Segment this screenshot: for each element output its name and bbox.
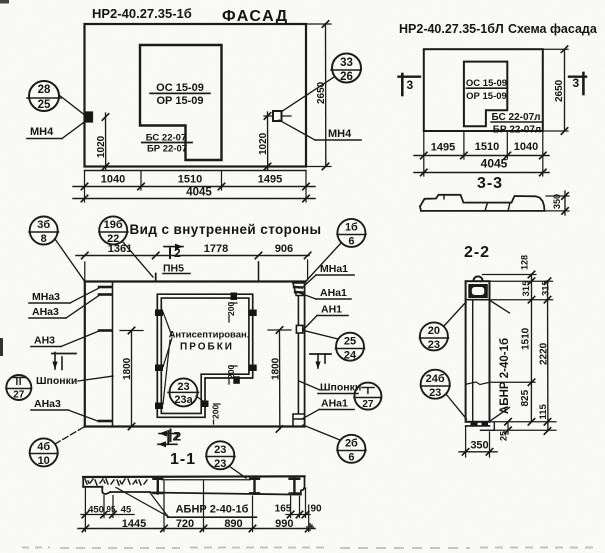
svg-text:АН1: АН1 — [321, 304, 342, 316]
svg-text:БР 22-07л: БР 22-07л — [493, 125, 542, 136]
svg-text:1510: 1510 — [178, 174, 202, 186]
svg-text:10: 10 — [38, 455, 50, 467]
svg-text:990: 990 — [275, 518, 293, 530]
svg-text:200: 200 — [211, 405, 221, 419]
svg-text:1800: 1800 — [122, 357, 133, 380]
svg-text:МНа1: МНа1 — [320, 263, 348, 275]
svg-text:1040: 1040 — [101, 174, 125, 186]
svg-text:350: 350 — [552, 194, 562, 209]
svg-text:2220: 2220 — [539, 342, 550, 365]
svg-text:БС 22-07: БС 22-07 — [146, 133, 187, 144]
svg-text:БР 22-07: БР 22-07 — [147, 144, 187, 155]
svg-text:1б: 1б — [345, 222, 358, 234]
svg-text:6: 6 — [348, 236, 354, 248]
svg-text:Шпонки: Шпонки — [320, 382, 361, 394]
svg-text:315: 315 — [541, 279, 552, 296]
svg-text:АНа1: АНа1 — [320, 287, 347, 299]
svg-text:МНа3: МНа3 — [32, 291, 60, 303]
svg-text:2650: 2650 — [316, 81, 327, 104]
svg-text:33: 33 — [340, 57, 353, 69]
svg-text:АНа3: АНа3 — [34, 398, 61, 410]
svg-text:2б: 2б — [345, 438, 358, 450]
svg-text:1510: 1510 — [475, 141, 499, 153]
svg-text:Шпонки: Шпонки — [36, 375, 77, 387]
svg-text:8: 8 — [41, 233, 47, 245]
svg-text:890: 890 — [224, 518, 242, 530]
svg-text:2: 2 — [174, 246, 181, 260]
svg-text:906: 906 — [275, 243, 293, 255]
svg-text:200: 200 — [226, 365, 236, 379]
svg-text:4б: 4б — [37, 441, 50, 453]
svg-text:20: 20 — [428, 325, 440, 337]
svg-text:25: 25 — [499, 431, 509, 441]
svg-text:3-3: 3-3 — [477, 175, 503, 192]
svg-text:315: 315 — [521, 280, 532, 297]
svg-text:ФАСАД: ФАСАД — [222, 8, 289, 25]
svg-text:23: 23 — [429, 387, 441, 399]
svg-text:3: 3 — [407, 78, 414, 92]
svg-text:26: 26 — [340, 71, 353, 83]
svg-text:БС 22-07л: БС 22-07л — [492, 112, 541, 123]
svg-text:4045: 4045 — [186, 187, 212, 199]
svg-text:1020: 1020 — [96, 135, 107, 158]
svg-text:Схема фасада: Схема фасада — [508, 22, 598, 36]
svg-text:23: 23 — [428, 339, 440, 351]
svg-text:24: 24 — [344, 350, 357, 362]
svg-text:95: 95 — [107, 505, 116, 514]
svg-text:825: 825 — [520, 389, 531, 406]
svg-text:1445: 1445 — [122, 518, 146, 530]
svg-text:25: 25 — [344, 336, 356, 348]
svg-text:25: 25 — [38, 99, 51, 111]
svg-text:ПРОБКИ: ПРОБКИ — [180, 342, 234, 353]
svg-text:23: 23 — [214, 458, 226, 470]
svg-text:АН3: АН3 — [34, 335, 55, 347]
svg-text:2: 2 — [173, 430, 180, 444]
svg-text:3б: 3б — [37, 219, 50, 231]
svg-text:1040: 1040 — [514, 141, 538, 153]
svg-text:24б: 24б — [426, 373, 445, 385]
svg-text:2650: 2650 — [554, 79, 565, 102]
svg-text:ОР 15-09: ОР 15-09 — [156, 95, 203, 107]
svg-text:Антисептирован.: Антисептирован. — [169, 330, 250, 341]
svg-text:22: 22 — [107, 233, 119, 245]
svg-text:ОС 15-09: ОС 15-09 — [466, 78, 507, 89]
svg-text:350: 350 — [470, 440, 488, 452]
svg-text:ПН5: ПН5 — [163, 263, 184, 275]
svg-text:1800: 1800 — [270, 357, 281, 380]
svg-text:200: 200 — [226, 302, 236, 316]
svg-text:90: 90 — [310, 504, 322, 515]
svg-text:НР2-40.27.35-1б: НР2-40.27.35-1б — [92, 6, 192, 21]
svg-text:Вид с внутренней стороны: Вид с внутренней стороны — [130, 222, 322, 237]
svg-text:1495: 1495 — [431, 142, 455, 154]
svg-text:128: 128 — [520, 255, 530, 270]
svg-text:1778: 1778 — [204, 243, 228, 255]
svg-text:27: 27 — [13, 390, 25, 401]
svg-text:1020: 1020 — [258, 132, 269, 155]
svg-text:АНа1: АНа1 — [321, 398, 348, 410]
svg-text:6: 6 — [348, 452, 354, 464]
svg-text:ОР 15-09: ОР 15-09 — [466, 91, 507, 102]
svg-text:АБНР 2-40-1б: АБНР 2-40-1б — [176, 504, 249, 516]
svg-text:3: 3 — [573, 76, 580, 90]
svg-text:450: 450 — [88, 505, 104, 516]
svg-text:2-2: 2-2 — [464, 244, 490, 261]
svg-text:27: 27 — [362, 399, 374, 410]
svg-text:АНа3: АНа3 — [32, 306, 59, 318]
svg-text:28: 28 — [38, 84, 51, 96]
svg-text:МН4: МН4 — [30, 126, 54, 138]
svg-text:45: 45 — [121, 505, 132, 516]
svg-text:II: II — [16, 377, 23, 388]
svg-text:1495: 1495 — [258, 174, 282, 186]
svg-text:НР2-40.27.35-1бЛ: НР2-40.27.35-1бЛ — [399, 22, 504, 36]
svg-text:ОС 15-09: ОС 15-09 — [156, 82, 204, 94]
svg-text:720: 720 — [176, 518, 194, 530]
svg-text:АБНР 2-40-1б: АБНР 2-40-1б — [499, 338, 511, 414]
svg-text:23: 23 — [177, 381, 189, 393]
svg-text:I: I — [367, 386, 370, 397]
svg-text:1-1: 1-1 — [170, 451, 196, 468]
svg-text:МН4: МН4 — [328, 128, 352, 140]
svg-text:23: 23 — [214, 444, 226, 456]
svg-text:4045: 4045 — [481, 157, 508, 171]
svg-text:1510: 1510 — [521, 327, 532, 350]
svg-text:115: 115 — [538, 403, 549, 419]
svg-text:19б: 19б — [104, 219, 123, 231]
svg-text:23а: 23а — [174, 394, 193, 406]
svg-text:165: 165 — [275, 504, 292, 515]
